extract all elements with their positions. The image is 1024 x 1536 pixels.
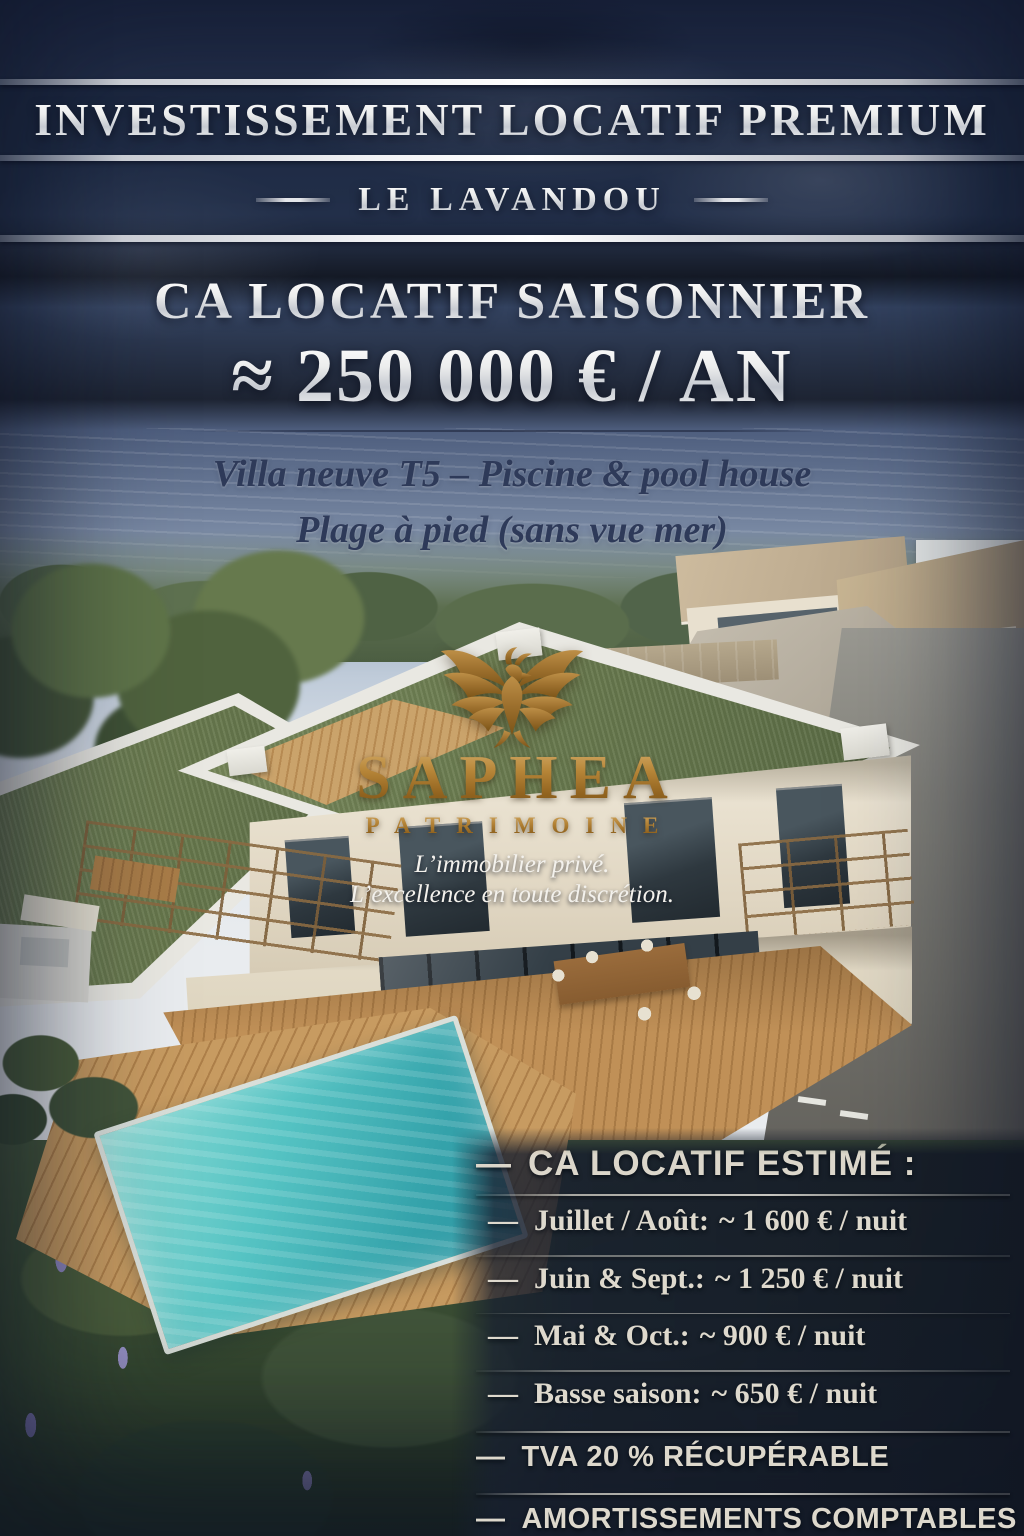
- rental-estimate-panel: — CA LOCATIF ESTIMÉ : — Juillet / Août: …: [452, 1128, 1024, 1536]
- divider: [476, 1431, 1010, 1433]
- brand-tagline-2: L’excellence en toute discrétion.: [0, 880, 1024, 910]
- amortization-row: — AMORTISSEMENTS COMPTABLES: [476, 1503, 1010, 1536]
- vat-label: TVA 20 % RÉCUPÉRABLE: [522, 1441, 890, 1474]
- estimate-label: Mai & Oct.:: [534, 1319, 690, 1353]
- thin-divider: [184, 430, 839, 432]
- road-marking: [798, 1096, 827, 1106]
- revenue-title: CA LOCATIF SAISONNIER: [0, 272, 1024, 332]
- estimate-value: ~ 900 € / nuit: [700, 1319, 866, 1353]
- divider: [476, 1493, 1010, 1495]
- estimate-row-may-oct: — Mai & Oct.: ~ 900 € / nuit: [476, 1319, 1010, 1365]
- row-dash: —: [488, 1319, 518, 1353]
- estimate-value: ~ 1 600 € / nuit: [719, 1204, 907, 1238]
- estimate-row-june-sept: — Juin & Sept.: ~ 1 250 € / nuit: [476, 1262, 1010, 1308]
- divider: [476, 1194, 1010, 1196]
- location-label: LE LAVANDOU: [358, 176, 666, 224]
- estimate-value: ~ 1 250 € / nuit: [715, 1262, 903, 1296]
- estimate-value: ~ 650 € / nuit: [712, 1377, 878, 1411]
- property-description-line2: Plage à pied (sans vue mer): [0, 508, 1024, 552]
- row-dash: —: [488, 1262, 518, 1296]
- dash-line: [694, 198, 768, 202]
- location-row: LE LAVANDOU: [0, 176, 1024, 224]
- row-dash: —: [488, 1377, 518, 1411]
- property-description-line1: Villa neuve T5 – Piscine & pool house: [0, 452, 1024, 496]
- brand-logo: SAPHEA PATRIMOINE L’immobilier privé. L’…: [0, 638, 1024, 910]
- estimate-heading-row: — CA LOCATIF ESTIMÉ :: [476, 1144, 1010, 1186]
- row-dash: —: [476, 1503, 506, 1536]
- estimate-row-low-season: — Basse saison: ~ 650 € / nuit: [476, 1377, 1010, 1423]
- estimate-label: Basse saison:: [534, 1377, 702, 1411]
- estimate-label: Juillet / Août:: [534, 1204, 709, 1238]
- row-dash: —: [476, 1144, 512, 1184]
- divider: [476, 1255, 1010, 1257]
- separator-bar: [0, 155, 1024, 161]
- divider: [476, 1370, 1010, 1372]
- separator-bar: [0, 79, 1024, 85]
- row-dash: —: [488, 1204, 518, 1238]
- brand-tagline-1: L’immobilier privé.: [0, 850, 1024, 880]
- poster: INVESTISSEMENT LOCATIF PREMIUM LE LAVAND…: [0, 0, 1024, 1536]
- vat-row: — TVA 20 % RÉCUPÉRABLE: [476, 1441, 1010, 1485]
- pool-house: [0, 924, 92, 1003]
- estimate-row-july-august: — Juillet / Août: ~ 1 600 € / nuit: [476, 1204, 1010, 1250]
- brand-name: SAPHEA: [0, 746, 1024, 810]
- phoenix-icon: [422, 638, 602, 750]
- brand-subtitle: PATRIMOINE: [0, 812, 1024, 840]
- estimate-label: Juin & Sept.:: [534, 1262, 705, 1296]
- amortization-label: AMORTISSEMENTS COMPTABLES: [522, 1503, 1017, 1536]
- revenue-amount: ≈ 250 000 € / AN: [0, 330, 1024, 422]
- separator-bar: [0, 235, 1024, 242]
- dash-line: [256, 198, 330, 202]
- divider: [476, 1313, 1010, 1315]
- poster-title: INVESTISSEMENT LOCATIF PREMIUM: [0, 92, 1024, 148]
- vent: [20, 937, 69, 967]
- row-dash: —: [476, 1441, 506, 1474]
- estimate-heading: CA LOCATIF ESTIMÉ :: [528, 1144, 916, 1184]
- road-marking: [840, 1110, 869, 1120]
